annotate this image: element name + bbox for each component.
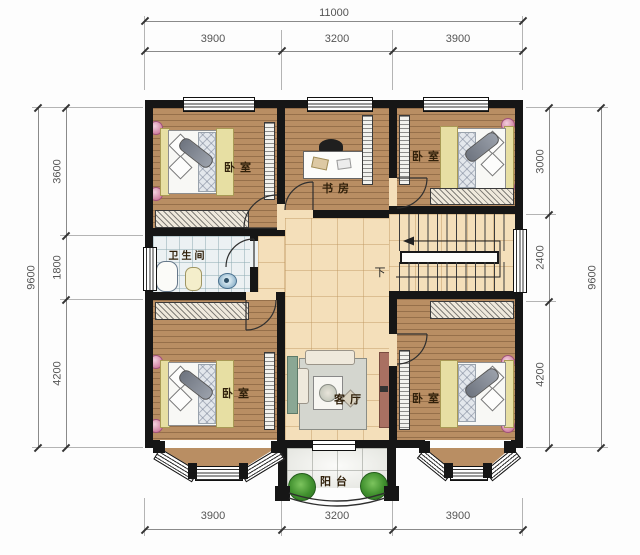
- door-opening-bedroom-top-right: [389, 178, 397, 206]
- extension-line: [60, 299, 143, 300]
- label-bathroom: 卫生间: [158, 250, 218, 263]
- floor-hall-west: [258, 236, 285, 292]
- dim-tick: [519, 47, 527, 55]
- dim-tick: [141, 526, 149, 534]
- sofa-back: [305, 350, 355, 365]
- radiator: [362, 115, 373, 185]
- wall-interior: [277, 292, 285, 448]
- dim-top-seg-3: 3900: [428, 33, 488, 46]
- window-stairwell: [513, 229, 527, 293]
- dim-tick: [597, 444, 605, 452]
- dim-line-right-segments: [549, 108, 550, 448]
- extension-line: [392, 30, 393, 90]
- dim-line-bottom: [145, 529, 523, 530]
- dim-tick: [519, 17, 527, 25]
- dim-right-seg-3: 4200: [535, 353, 548, 397]
- dim-tick: [389, 526, 397, 534]
- window-top-right-bedroom: [423, 97, 489, 112]
- dim-top-seg-2: 3200: [307, 33, 367, 46]
- dim-left-seg-3: 4200: [52, 352, 65, 396]
- wall-interior: [313, 210, 389, 218]
- window-study: [307, 97, 373, 112]
- wall-interior: [389, 108, 397, 178]
- wall-interior: [389, 206, 523, 214]
- dim-right-seg-1: 3000: [535, 140, 548, 184]
- dim-left-total: 9600: [26, 256, 39, 300]
- wall-interior: [277, 108, 285, 204]
- label-study: 书房: [318, 183, 358, 196]
- window-bathroom: [143, 247, 157, 291]
- wall-interior: [145, 292, 246, 300]
- dim-left-seg-2: 1800: [52, 246, 65, 290]
- door-opening-bathroom: [250, 241, 258, 267]
- dim-bottom-seg-2: 3200: [307, 510, 367, 523]
- dim-right-seg-2: 2400: [535, 236, 548, 280]
- tv-cabinet-left: [287, 356, 298, 414]
- dim-tick: [519, 526, 527, 534]
- wall-interior: [389, 292, 397, 334]
- floor-plan: 11000 3900 3200 3900 3900 3200 3900 9600…: [0, 0, 640, 555]
- wall-interior: [145, 228, 285, 236]
- radiator: [399, 350, 410, 430]
- dim-right-total: 9600: [587, 256, 600, 300]
- door-opening-bedroom-top-left: [277, 204, 285, 230]
- extension-line: [526, 214, 556, 215]
- radiator: [399, 115, 410, 185]
- wall-balcony-right: [387, 448, 396, 490]
- dim-line-right-total: [601, 108, 602, 448]
- extension-line: [32, 447, 143, 448]
- dim-tick: [278, 526, 286, 534]
- wall-bottom: [285, 440, 314, 448]
- label-bedroom-top-right: 卧室: [406, 151, 450, 164]
- radiator: [264, 122, 275, 200]
- label-stairs-down: 下: [372, 267, 388, 280]
- door-opening-bedroom-bottom-right: [389, 334, 397, 366]
- dim-tick: [62, 444, 70, 452]
- dim-top-seg-1: 3900: [183, 33, 243, 46]
- bay-mullion-block: [483, 463, 492, 478]
- balcony-sliding-door: [312, 440, 356, 451]
- tv-set: [380, 386, 388, 392]
- label-balcony: 阳台: [314, 476, 358, 489]
- stair-treads-lower: [399, 262, 513, 291]
- extension-line: [526, 301, 556, 302]
- dim-tick: [545, 444, 553, 452]
- dim-tick: [34, 444, 42, 452]
- bay-mullion-block: [419, 441, 430, 453]
- door-opening-bedroom-bottom-left: [246, 292, 276, 300]
- extension-line: [32, 107, 143, 108]
- dim-left-seg-1: 3600: [52, 150, 65, 194]
- toilet: [185, 267, 202, 291]
- bay-mullion-block: [188, 463, 197, 479]
- bay-window-front: [195, 466, 243, 481]
- sink-drain: [224, 278, 229, 283]
- dim-bottom-seg-3: 3900: [428, 510, 488, 523]
- bay-mullion-block: [444, 463, 453, 478]
- bathtub: [156, 261, 178, 292]
- plant: [288, 473, 316, 501]
- label-bedroom-bottom-right: 卧室: [406, 393, 450, 406]
- wardrobe: [155, 210, 249, 228]
- label-living-room: 客厅: [330, 394, 370, 407]
- balcony-corner-block: [384, 486, 399, 501]
- balcony-corner-block: [275, 486, 290, 501]
- door-opening-study: [285, 210, 313, 218]
- extension-line: [526, 447, 608, 448]
- dim-bottom-seg-1: 3900: [183, 510, 243, 523]
- dim-line-top-segments: [145, 51, 523, 52]
- bay-mullion-block: [153, 441, 165, 453]
- label-bedroom-bottom-left: 卧室: [216, 388, 260, 401]
- dim-line-left-segments: [66, 108, 67, 448]
- extension-line: [281, 30, 282, 90]
- dim-top-total: 11000: [304, 7, 364, 20]
- wall-interior: [389, 291, 523, 299]
- window-top-left-bedroom: [183, 97, 255, 112]
- wardrobe: [155, 302, 249, 320]
- wardrobe: [430, 301, 514, 319]
- wall-interior: [389, 366, 397, 448]
- bay-mullion-block: [239, 463, 248, 479]
- radiator: [264, 352, 275, 430]
- extension-line: [526, 107, 608, 108]
- desk-paper: [336, 158, 351, 170]
- stair-treads-upper: [399, 214, 513, 251]
- dim-line-top-total: [145, 21, 523, 22]
- bay-mullion-block: [271, 441, 283, 453]
- bay-mullion-block: [504, 441, 516, 453]
- wardrobe: [430, 188, 514, 205]
- extension-line: [60, 235, 143, 236]
- label-bedroom-top-left: 卧室: [218, 162, 262, 175]
